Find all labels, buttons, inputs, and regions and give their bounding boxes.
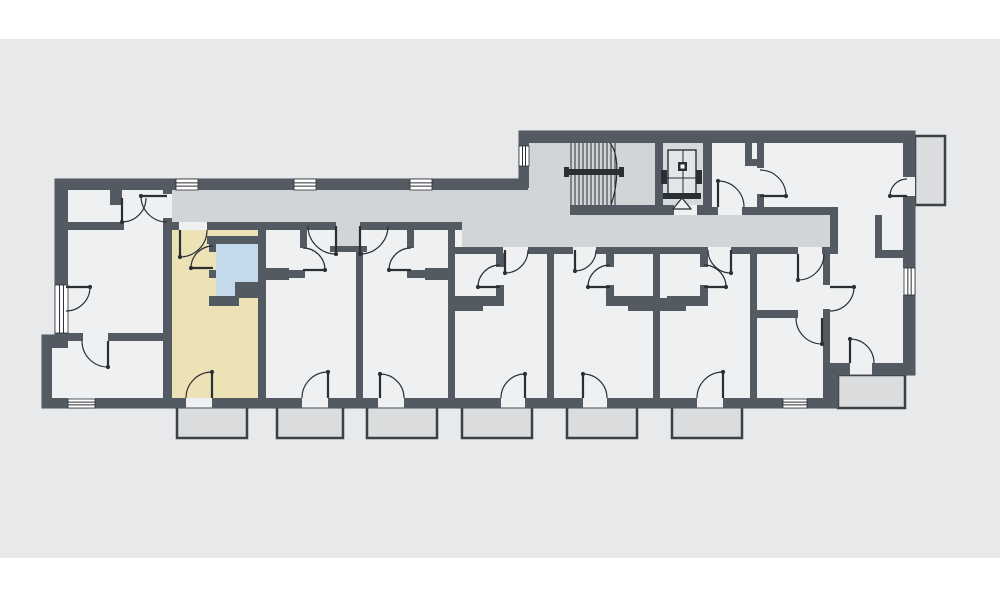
balcony (367, 406, 437, 438)
wall (287, 270, 305, 278)
wall (823, 309, 830, 398)
wall (703, 142, 712, 215)
wall (525, 398, 583, 408)
wall (300, 226, 307, 248)
door-hinge-dot (573, 269, 577, 273)
door-hinge-dot (334, 252, 338, 256)
door-hinge-dot (729, 271, 733, 275)
balcony (672, 406, 742, 438)
door-hinge-dot (848, 337, 852, 341)
balcony (567, 406, 637, 438)
wall (209, 244, 216, 252)
door-hinge-dot (476, 285, 480, 289)
wall (745, 159, 762, 166)
door-hinge-dot (852, 285, 856, 289)
door-hinge-dot (581, 372, 585, 376)
door-hinge-dot (586, 285, 590, 289)
elevator-symbol-square-inner (681, 165, 685, 169)
door-hinge-dot (106, 365, 110, 369)
wall (432, 179, 528, 190)
wall (316, 179, 410, 190)
door-hinge-dot (724, 285, 728, 289)
wall (667, 296, 708, 306)
wall (875, 215, 882, 250)
floor-plan-page (0, 0, 1000, 600)
wall (750, 247, 757, 398)
balcony (915, 136, 945, 205)
wall (212, 398, 302, 408)
wall (425, 268, 455, 280)
wall (596, 247, 708, 254)
door-hinge-dot (210, 370, 214, 374)
wall (407, 226, 414, 248)
door-hinge-dot (784, 194, 788, 198)
wall (723, 398, 783, 408)
wall (60, 333, 83, 341)
stairs-rail-cap (564, 167, 569, 177)
wall (830, 375, 838, 408)
elevator-door-bracket (696, 170, 702, 184)
wall (235, 282, 266, 298)
wall (163, 222, 179, 230)
door-hinge-dot (120, 220, 124, 224)
wall (207, 222, 336, 230)
door-hinge-dot (503, 271, 507, 275)
floor-plan (0, 0, 1000, 600)
floor-plan-svg (0, 0, 1000, 600)
window (410, 179, 432, 190)
wall (404, 398, 501, 408)
window (55, 285, 68, 333)
door-hinge-dot (139, 194, 143, 198)
wall (110, 188, 122, 205)
wall (42, 335, 52, 408)
wall (455, 298, 483, 311)
door-hinge-dot (323, 268, 327, 272)
door-hinge-dot (888, 194, 892, 198)
wall (258, 230, 266, 398)
window (176, 179, 198, 190)
wall (872, 363, 915, 375)
window (294, 179, 316, 190)
wall (163, 188, 172, 194)
wall (757, 194, 764, 215)
wall (519, 131, 915, 143)
door-hinge-dot (820, 342, 824, 346)
wall (607, 398, 697, 408)
wall (209, 296, 239, 306)
wall (356, 246, 363, 398)
elevator-car (668, 150, 696, 196)
wall (712, 207, 718, 215)
wall (519, 131, 529, 146)
window (783, 399, 807, 408)
door-hinge-dot (326, 370, 330, 374)
door-hinge-dot (796, 278, 800, 282)
balcony (838, 375, 905, 408)
door-opening (903, 177, 915, 196)
wall (42, 398, 68, 408)
door-hinge-dot (387, 268, 391, 272)
wall (653, 247, 660, 398)
balcony (177, 406, 247, 438)
stairs-rail (566, 169, 622, 175)
door-hinge-dot (178, 255, 182, 259)
wall (95, 398, 186, 408)
balcony (277, 406, 343, 438)
door-hinge-dot (358, 252, 362, 256)
wall (328, 398, 378, 408)
wall (207, 236, 258, 244)
wall (830, 207, 838, 254)
wall (448, 222, 455, 398)
wall (68, 222, 124, 230)
door-hinge-dot (378, 372, 382, 376)
wall (875, 250, 905, 258)
wall (407, 270, 425, 278)
wall (259, 268, 289, 280)
wall (903, 131, 915, 177)
door-hinge-dot (523, 372, 527, 376)
balcony (462, 406, 532, 438)
wall (547, 247, 554, 398)
door-hinge-dot (721, 370, 725, 374)
wall (519, 166, 529, 188)
elevator-door-bracket (661, 170, 667, 184)
wall (731, 247, 798, 254)
wall (209, 270, 216, 278)
door-hinge-dot (716, 179, 720, 183)
window (68, 399, 95, 408)
door-hinge-dot (189, 266, 193, 270)
wall (108, 333, 163, 341)
wall (163, 218, 172, 398)
window (519, 146, 529, 166)
wall (455, 247, 503, 254)
wall (198, 179, 294, 190)
wall (755, 310, 798, 318)
wall (55, 188, 68, 285)
stairs-rail-cap (619, 167, 624, 177)
window (904, 268, 915, 295)
wall (742, 207, 830, 215)
wall (830, 363, 850, 375)
door-hinge-dot (88, 285, 92, 289)
